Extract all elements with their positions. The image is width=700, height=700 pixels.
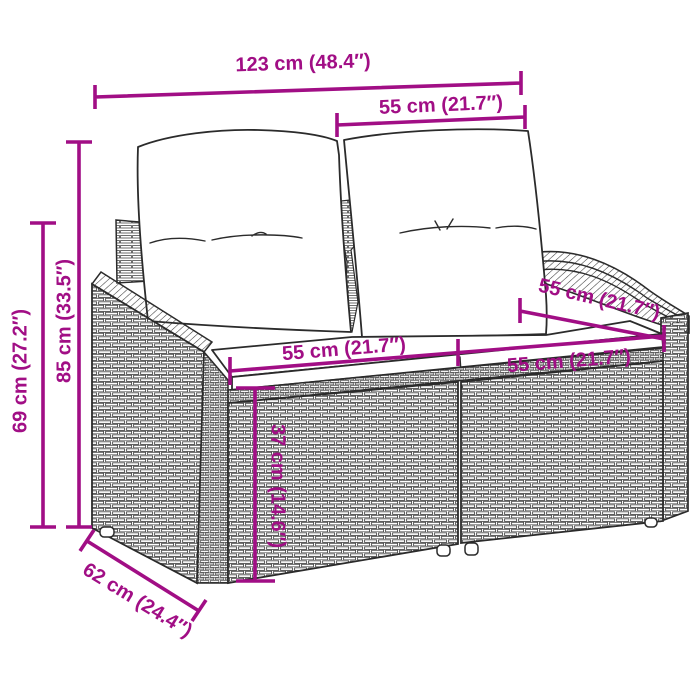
- sofa-foot-left: [100, 527, 114, 537]
- dim-seat-height-label: 37 cm (14.6″): [267, 424, 289, 548]
- dim-armrest-height-label: 69 cm (27.2″): [9, 309, 31, 433]
- dim-seat-section-top-label: 55 cm (21.7″): [379, 92, 504, 119]
- back-cushion-left: [138, 130, 351, 332]
- dim-armrest-height: 69 cm (27.2″): [9, 223, 56, 527]
- seat-box-front-left: [228, 382, 458, 583]
- sofa-foot-right: [645, 518, 657, 527]
- dim-total-height-label: 85 cm (33.5″): [53, 259, 75, 383]
- sofa-foot-mid-left: [437, 545, 450, 556]
- sofa-foot-mid-right: [465, 543, 478, 555]
- back-cushion-right: [344, 129, 547, 337]
- dim-total-width-label: 123 cm (48.4″): [235, 50, 371, 76]
- sofa-dimension-illustration: 123 cm (48.4″) 55 cm (21.7″) 85 cm (33.5…: [0, 0, 700, 700]
- seat-box-front-right: [461, 361, 663, 543]
- dimension-diagram: 123 cm (48.4″) 55 cm (21.7″) 85 cm (33.5…: [0, 0, 700, 700]
- dim-total-height: 85 cm (33.5″): [53, 142, 92, 527]
